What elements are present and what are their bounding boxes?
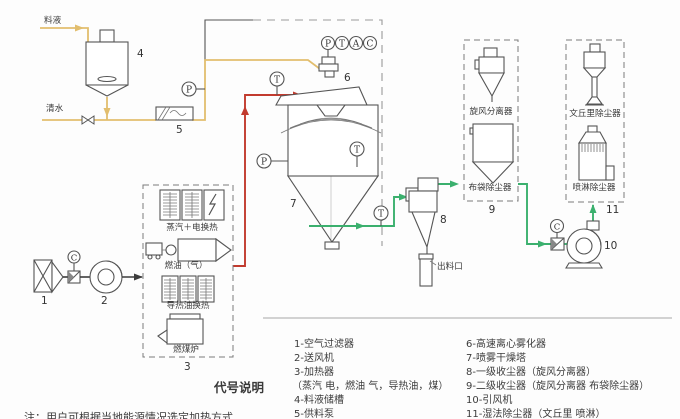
feed-tank	[86, 30, 128, 96]
tag-6: 6	[344, 72, 351, 84]
tag-11: 11	[606, 204, 619, 216]
svg-text:C: C	[71, 254, 78, 264]
flow-diagram-page: P T A C P T P T T C C 料液 清水 4 5	[0, 0, 680, 419]
svg-text:T: T	[274, 76, 280, 86]
wet-collector-box	[566, 40, 624, 202]
thermal-oil-label: 导热油换热	[167, 299, 210, 311]
cyclone-separator-label: 旋风分离器	[470, 105, 513, 117]
legend-item-3-detail: （蒸汽 电，燃油 气，导热油，煤）	[292, 379, 448, 392]
clean-water-label: 清水	[46, 102, 64, 114]
secondary-collector-box	[464, 40, 518, 201]
tag-3: 3	[184, 361, 191, 373]
gauge-p-feed: P	[182, 82, 205, 96]
coal-furnace-label: 燃煤炉	[173, 343, 199, 355]
venturi-label: 文丘里除尘器	[569, 107, 621, 119]
air-intake-line	[34, 260, 143, 293]
svg-text:C: C	[554, 223, 561, 233]
feed-pump	[156, 107, 193, 120]
heater-box	[143, 185, 233, 357]
legend-item-5: 5-供料泵	[294, 407, 334, 419]
gauge-c-intake: C	[68, 251, 80, 271]
legend-item-9: 9-二级收尘器（旋风分离器 布袋除尘器）	[466, 379, 649, 392]
spray-dryer-flow-diagram: P T A C P T P T T C C 料液 清水 4 5	[0, 0, 680, 419]
tag-4: 4	[137, 48, 144, 60]
gauge-t-hot-air: T	[270, 72, 284, 95]
tag-8: 8	[440, 214, 447, 226]
feed-liquid-label: 料液	[44, 14, 62, 26]
gauge-letter-t: T	[339, 40, 345, 50]
legend-item-3: 3-加热器	[294, 365, 334, 378]
tag-10: 10	[604, 240, 617, 252]
gauge-letter-p: P	[325, 40, 331, 50]
gauge-ptac: P T A C	[322, 37, 377, 50]
legend-item-7: 7-喷雾干燥塔	[466, 351, 526, 364]
footnote: 注：用户可根据当地能源情况选定加热方式	[24, 410, 233, 419]
discharge-outlet-label: 出料口	[437, 260, 463, 272]
oil-gas-label: 燃油（气）	[165, 259, 208, 271]
gauge-letter-a: A	[352, 40, 360, 50]
legend-item-4: 4-料液储槽	[294, 393, 344, 406]
svg-text:T: T	[354, 146, 360, 156]
water-valve-icon	[82, 116, 94, 124]
legend-heading: 代号说明	[213, 380, 264, 395]
svg-text:P: P	[261, 158, 267, 168]
gauge-t-exhaust: T	[374, 206, 388, 226]
legend-item-1: 1-空气过滤器	[294, 337, 354, 350]
legend-item-8: 8-一级收尘器（旋风分离器）	[466, 365, 596, 378]
spray-dryer	[276, 87, 381, 249]
primary-cyclone	[406, 178, 438, 286]
gauge-p-dryer: P	[257, 154, 288, 168]
tag-9: 9	[489, 204, 496, 216]
legend-item-11: 11-湿法除尘器（文丘里 喷淋）	[466, 407, 606, 419]
tag-2: 2	[101, 295, 108, 307]
tag-5: 5	[176, 124, 183, 136]
steam-electric-label: 蒸汽＋电换热	[166, 221, 218, 233]
tag-7: 7	[290, 198, 297, 210]
gauge-c-fan: C	[551, 220, 564, 239]
gauge-letter-c: C	[367, 40, 374, 50]
spray-scrubber-label: 喷淋除尘器	[573, 181, 616, 193]
svg-text:P: P	[186, 86, 192, 96]
atomizer	[319, 50, 338, 77]
tag-1: 1	[41, 295, 48, 307]
bag-filter-label: 布袋除尘器	[469, 181, 512, 193]
legend-item-10: 10-引风机	[466, 393, 512, 406]
svg-text:T: T	[378, 210, 384, 220]
legend-item-6: 6-高速离心雾化器	[466, 337, 546, 350]
legend-item-2: 2-送风机	[294, 351, 334, 364]
